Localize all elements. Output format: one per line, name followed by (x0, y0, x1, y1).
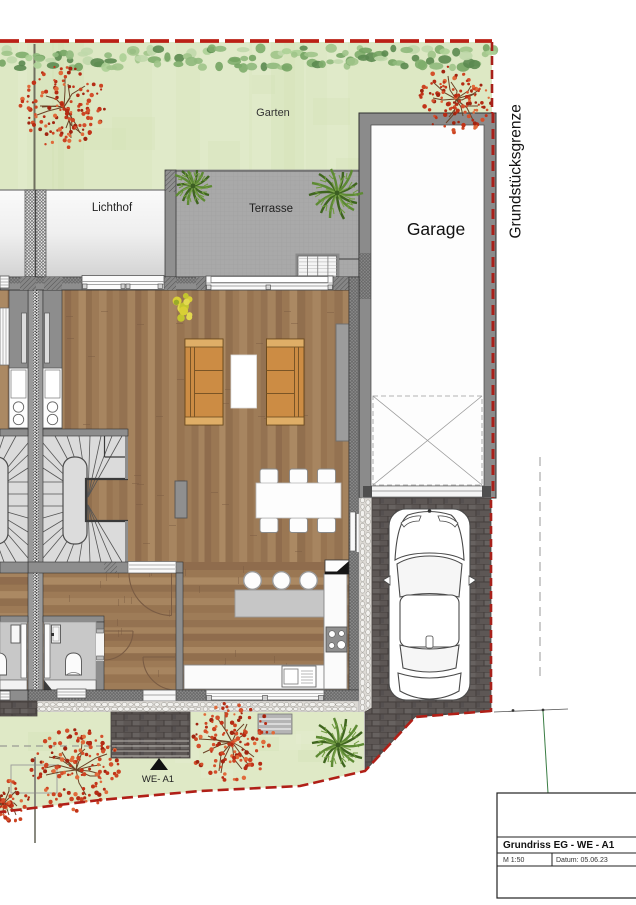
svg-text:Datum: 05.06.23: Datum: 05.06.23 (556, 857, 608, 864)
svg-text:M 1:50: M 1:50 (503, 857, 525, 864)
svg-text:Garage: Garage (407, 219, 465, 239)
svg-text:Grundstücksgrenze: Grundstücksgrenze (508, 104, 525, 238)
svg-text:Terrasse: Terrasse (249, 203, 293, 215)
svg-text:Garten: Garten (256, 107, 290, 119)
svg-text:WE- A1: WE- A1 (142, 774, 174, 785)
svg-text:Lichthof: Lichthof (92, 202, 133, 214)
svg-text:Grundriss EG - WE - A1: Grundriss EG - WE - A1 (503, 840, 615, 851)
